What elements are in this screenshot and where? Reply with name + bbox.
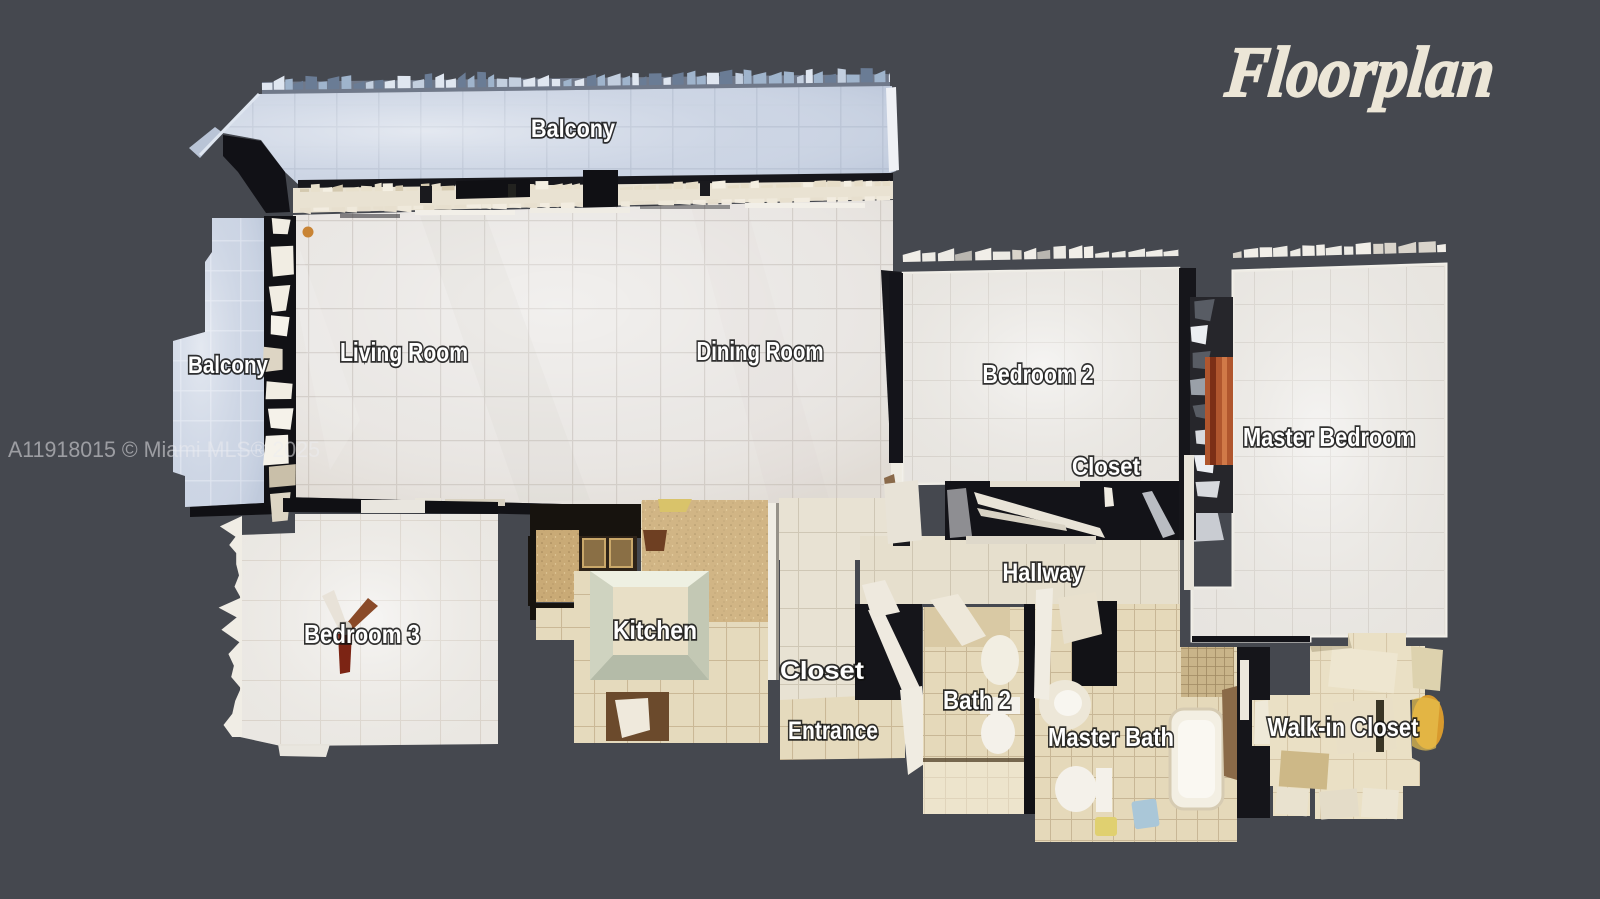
svg-text:Bedroom 2: Bedroom 2 — [983, 359, 1094, 389]
svg-text:Master Bath: Master Bath — [1048, 722, 1174, 752]
svg-text:Bedroom 3: Bedroom 3 — [304, 619, 420, 649]
svg-text:Master Bedroom: Master Bedroom — [1243, 422, 1415, 452]
svg-text:Walk-in Closet: Walk-in Closet — [1268, 712, 1419, 742]
svg-text:Balcony: Balcony — [531, 115, 615, 143]
svg-text:Dining Room: Dining Room — [697, 336, 824, 366]
svg-text:Closet: Closet — [1072, 453, 1141, 481]
svg-text:A11918015 © Miami MLS® 2025: A11918015 © Miami MLS® 2025 — [8, 437, 320, 462]
svg-text:Living Room: Living Room — [340, 337, 468, 367]
svg-text:Hallway: Hallway — [1003, 559, 1084, 587]
svg-text:Entrance: Entrance — [788, 717, 878, 745]
svg-text:Balcony: Balcony — [188, 352, 269, 379]
svg-text:Kitchen: Kitchen — [613, 615, 697, 645]
svg-text:Closet: Closet — [780, 657, 865, 685]
svg-text:Bath 2: Bath 2 — [943, 685, 1011, 715]
svg-text:Floorplan: Floorplan — [1221, 32, 1498, 112]
